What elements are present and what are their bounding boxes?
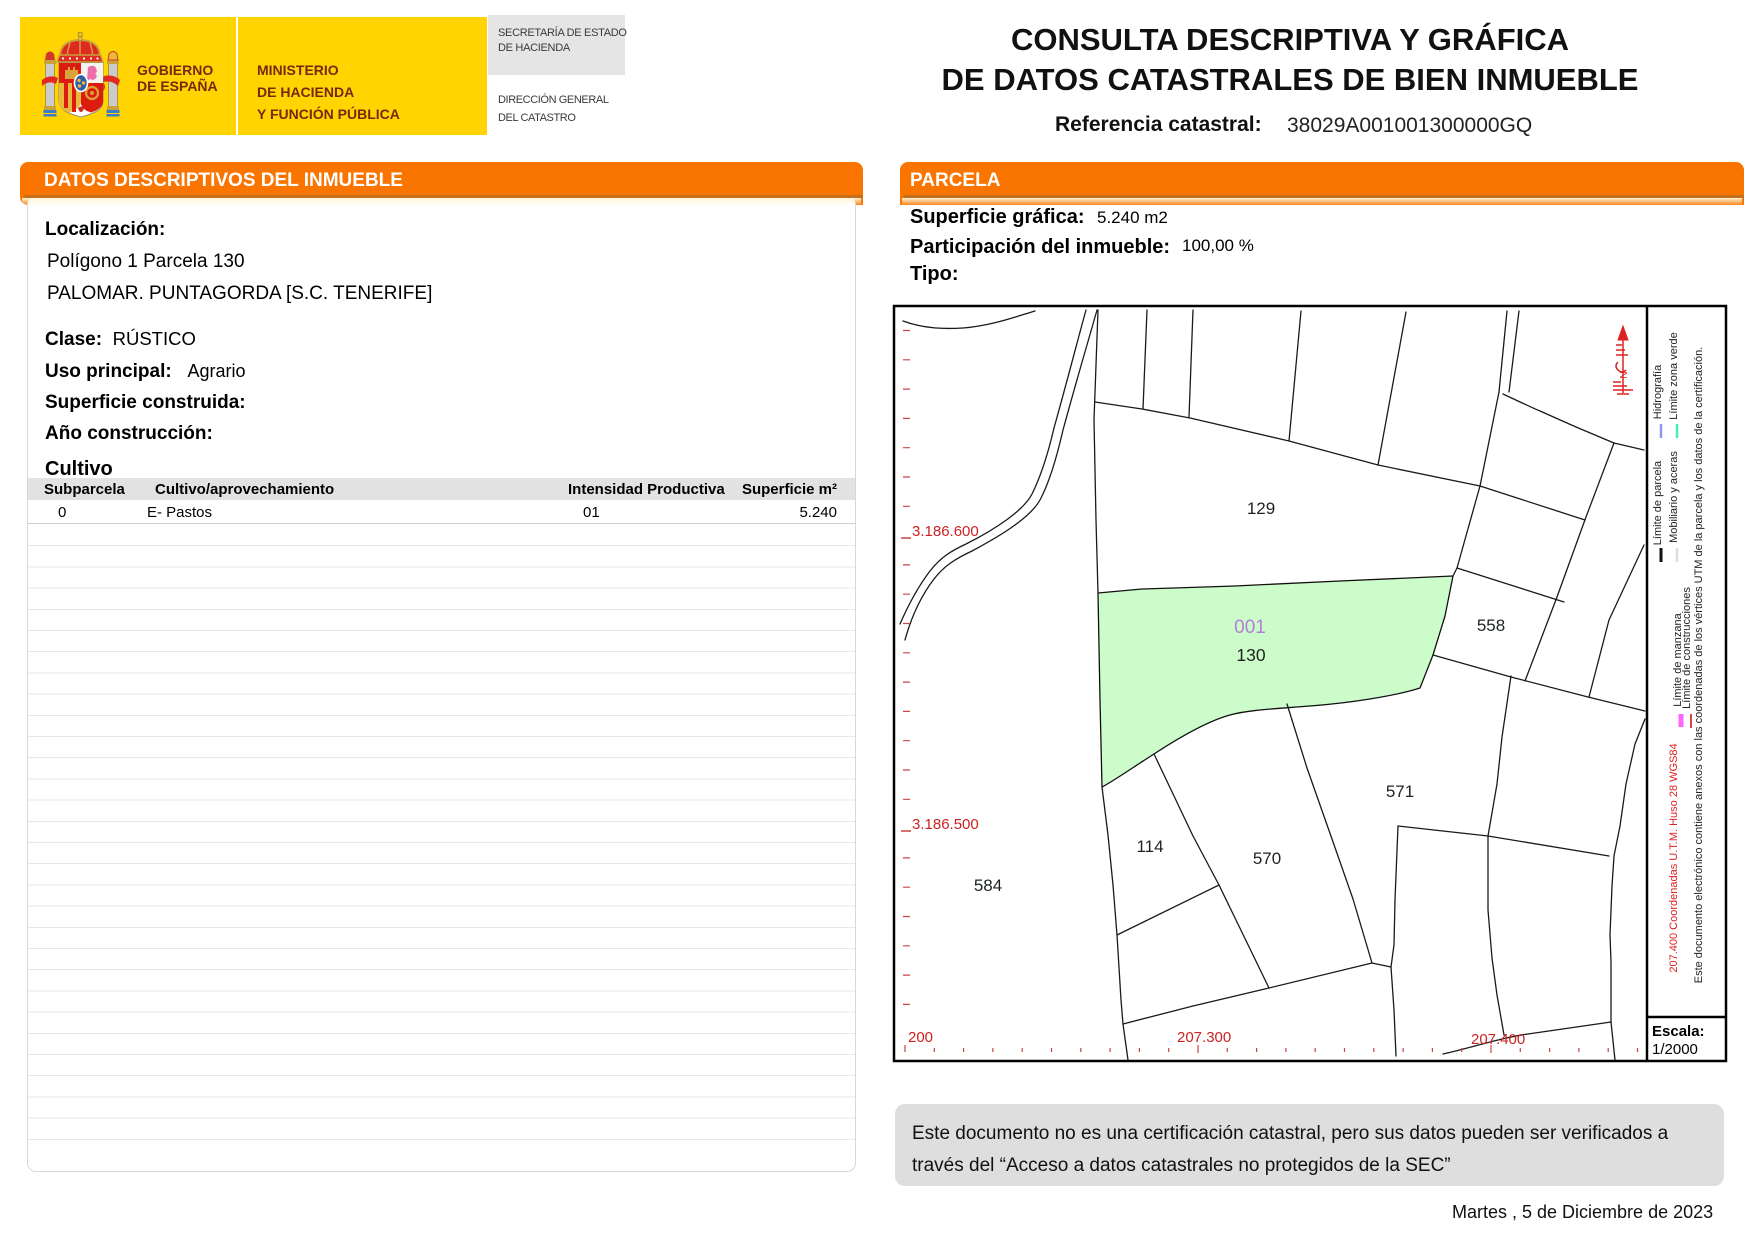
svg-text:Límite de parcela: Límite de parcela [1652,460,1664,545]
svg-text:Mobiliario y aceras: Mobiliario y aceras [1668,451,1680,543]
svg-text:558: 558 [1477,616,1505,635]
svg-text:200: 200 [908,1029,933,1046]
svg-text:3.186.600: 3.186.600 [912,523,979,540]
svg-text:1/2000: 1/2000 [1652,1041,1698,1058]
svg-text:114: 114 [1136,837,1163,856]
svg-text:207.400 Coordenadas U.T.M. Hus: 207.400 Coordenadas U.T.M. Huso 28 WGS84 [1668,743,1680,972]
svg-text:001: 001 [1234,617,1266,638]
svg-text:570: 570 [1253,849,1281,868]
svg-text:Este documento electrónico con: Este documento electrónico contiene anex… [1693,347,1705,984]
svg-text:584: 584 [974,876,1002,895]
svg-text:Hidrografía: Hidrografía [1652,364,1664,419]
svg-text:3.186.500: 3.186.500 [912,816,979,833]
svg-text:571: 571 [1386,782,1414,801]
svg-text:129: 129 [1247,499,1275,518]
svg-text:207.400: 207.400 [1471,1031,1525,1048]
svg-text:207.300: 207.300 [1177,1029,1231,1046]
svg-text:Límite de construcciones: Límite de construcciones [1681,587,1693,709]
svg-text:130: 130 [1236,645,1265,665]
svg-text:N: N [1619,371,1630,378]
svg-text:Escala:: Escala: [1652,1023,1705,1040]
svg-text:Límite zona verde: Límite zona verde [1668,332,1680,419]
